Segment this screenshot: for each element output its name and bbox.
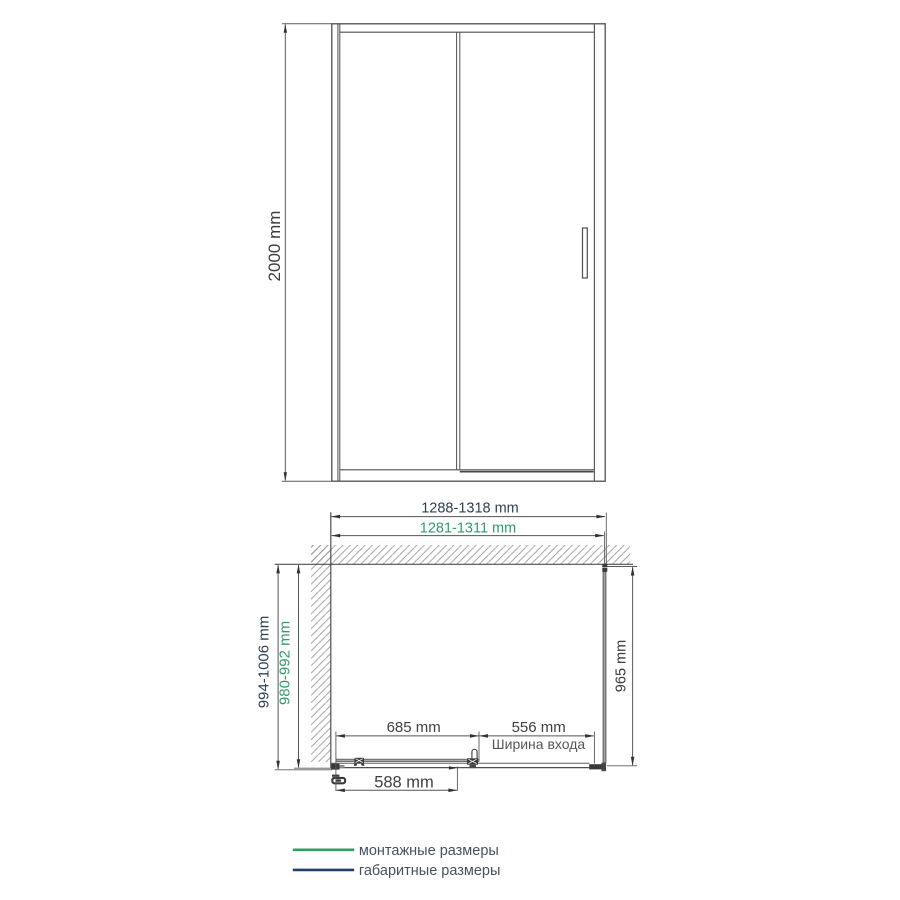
svg-text:685 mm: 685 mm (387, 719, 441, 736)
svg-text:556 mm: 556 mm (512, 719, 566, 736)
svg-text:1288-1318 mm: 1288-1318 mm (421, 501, 519, 517)
svg-text:2000 mm: 2000 mm (265, 211, 284, 282)
svg-text:Ширина входа: Ширина входа (492, 736, 586, 752)
svg-text:965 mm: 965 mm (613, 640, 629, 692)
svg-text:994-1006 mm: 994-1006 mm (256, 616, 273, 709)
svg-text:1281-1311 mm: 1281-1311 mm (420, 521, 516, 537)
svg-text:габаритные размеры: габаритные размеры (359, 863, 501, 879)
svg-text:588 mm: 588 mm (374, 773, 434, 791)
svg-text:980-992 mm: 980-992 mm (276, 621, 293, 705)
svg-text:монтажные размеры: монтажные размеры (359, 843, 499, 859)
